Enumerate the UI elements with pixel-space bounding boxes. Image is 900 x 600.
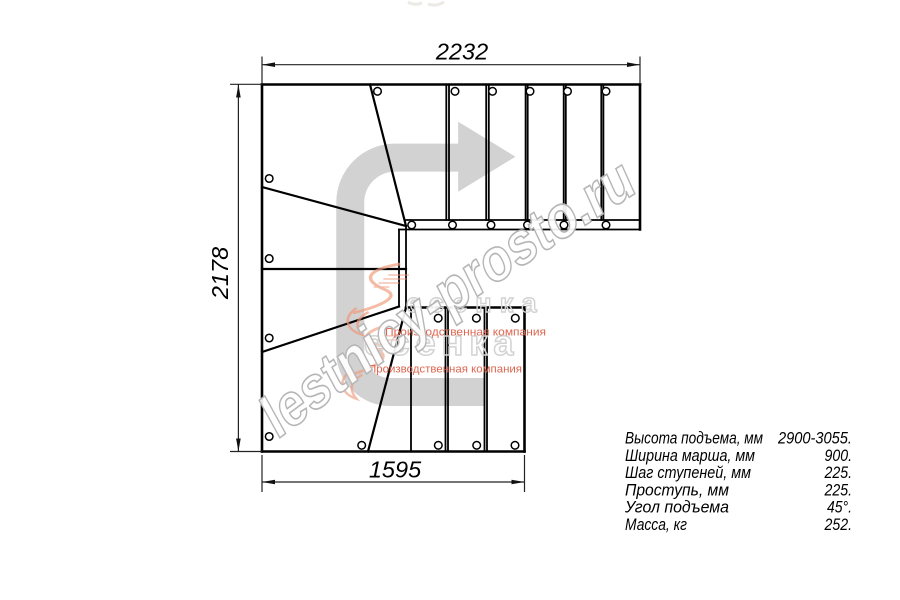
svg-text:Шаг ступеней, мм: Шаг ступеней, мм [625,464,751,482]
svg-text:45°.: 45°. [827,499,852,517]
svg-text:2900-3055.: 2900-3055. [777,430,852,448]
svg-text:2232: 2232 [435,39,488,65]
svg-text:1595: 1595 [369,457,422,483]
svg-text:225.: 225. [824,481,852,499]
svg-text:Проступь, мм: Проступь, мм [625,481,729,499]
svg-text:Высота подъема, мм: Высота подъема, мм [625,430,763,448]
svg-text:225.: 225. [824,464,852,482]
svg-text:252.: 252. [824,516,852,534]
svg-text:2178: 2178 [207,247,233,300]
svg-text:900.: 900. [825,447,853,465]
svg-text:Угол подъема: Угол подъема [624,499,729,517]
svg-text:Ширина марша, мм: Ширина марша, мм [625,447,755,465]
svg-text:Масса, кг: Масса, кг [625,516,687,534]
